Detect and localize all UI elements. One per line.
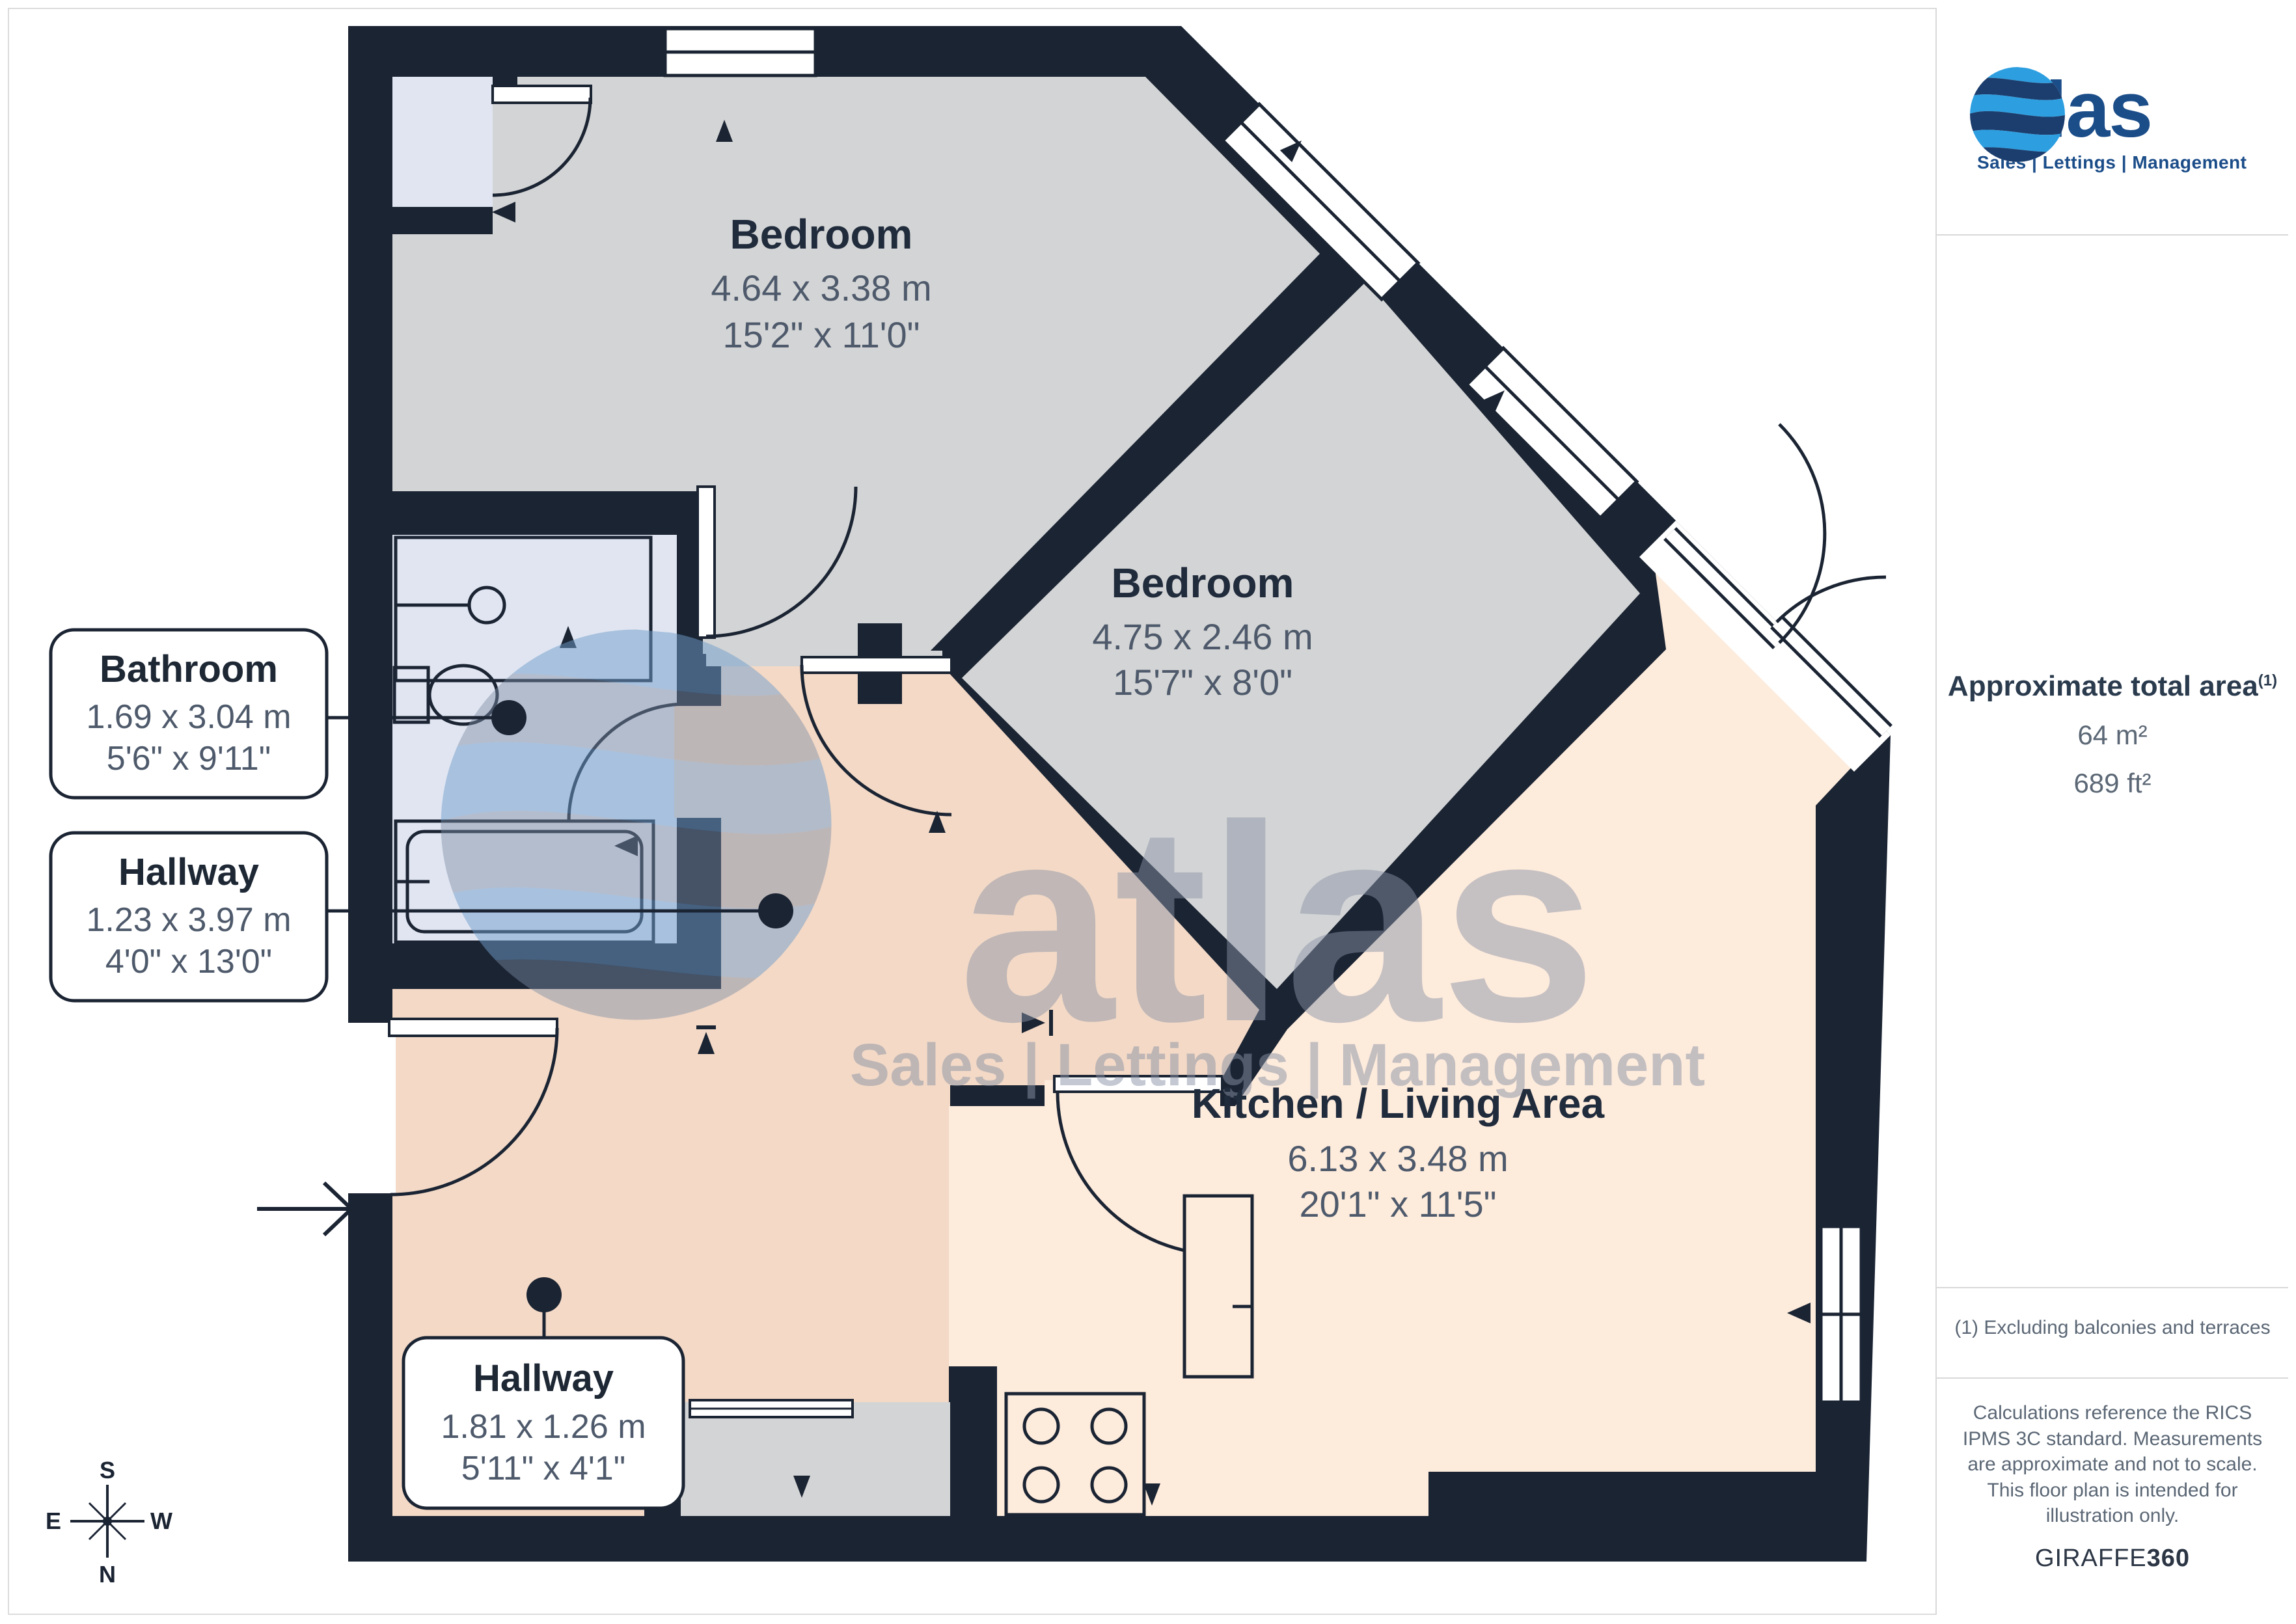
bathroom-metric: 1.69 x 3.04 m [86,698,291,736]
compass-north: N [99,1561,116,1588]
bedroom1-imperial: 15'2" x 11'0" [723,314,920,355]
total-area-title: Approximate total area(1) [1937,670,2288,703]
hallway2-label: Hallway [473,1357,614,1400]
disclaimer-text: Calculations reference the RICS IPMS 3C … [1960,1400,2265,1529]
balcony-door-arc-2 [1777,577,1886,622]
wall-stub-kitchen-west [949,1366,997,1516]
bedroom1-metric: 4.64 x 3.38 m [711,267,931,308]
hallway1-label: Hallway [118,851,259,893]
bathroom-label: Bathroom [100,648,278,690]
total-area-block: Approximate total area(1) 64 m² 689 ft² [1937,670,2288,799]
bedroom2-door-leaf [802,657,951,673]
hob-unit [1006,1394,1144,1515]
tall-kitchen-unit [1184,1196,1252,1377]
bedroom1-label: Bedroom [730,211,913,258]
hallway2-imperial: 5'11" x 4'1" [461,1450,625,1487]
bedroom2-imperial: 15'7" x 8'0" [1113,662,1292,703]
hallway1-metric: 1.23 x 3.97 m [86,901,291,939]
compass-south: S [100,1457,115,1483]
leader-dot [491,700,526,735]
compass-east: E [46,1508,61,1534]
entry-door-leaf [389,1019,557,1036]
doorway-gap-entry [344,1023,396,1193]
credit-suffix: 360 [2147,1545,2190,1572]
bedroom1-door-leaf [698,487,715,638]
sidebar-divider [1937,1377,2288,1379]
sidebar-divider [1937,234,2288,236]
leader-dot [526,1277,562,1312]
hallway1-imperial: 4'0" x 13'0" [105,943,272,981]
bedroom2-label: Bedroom [1112,560,1294,606]
atlas-globe-icon [1968,65,2067,164]
closet-bedroom1-floor [392,77,493,207]
info-sidebar: atlas Sales | Lettings | Management Appr… [1935,8,2288,1615]
total-area-imperial: 689 ft² [1937,768,2288,799]
hallway2-metric: 1.81 x 1.26 m [441,1408,646,1446]
credit-brand: GIRAFFE [2035,1545,2147,1572]
total-area-metric: 64 m² [1937,720,2288,751]
entry-arrow-icon [257,1183,351,1235]
area-footnote: (1) Excluding balconies and terraces [1937,1317,2288,1339]
balcony-door-arc-1 [1779,424,1825,643]
compass-west: W [150,1508,172,1534]
leader-dot [758,893,793,928]
bathroom-imperial: 5'6" x 9'11" [107,740,271,778]
closet-door-leaf [493,86,591,103]
total-area-title-text: Approximate total area [1948,670,2258,702]
kitchen-living-imperial: 20'1" x 11'5" [1300,1184,1497,1225]
bedroom2-metric: 4.75 x 2.46 m [1092,616,1313,657]
total-area-footnote-marker: (1) [2258,671,2277,689]
floorplan-page: atlas Sales | Lettings | Management Bedr… [0,0,2296,1624]
agency-logo: atlas Sales | Lettings | Management [1968,65,2267,182]
giraffe360-credit: GIRAFFE360 [1937,1545,2288,1573]
sidebar-divider [1937,1287,2288,1288]
kitchen-living-label: Kitchen / Living Area [1192,1080,1605,1127]
entry-closet-floor [681,1402,950,1516]
kitchen-living-metric: 6.13 x 3.48 m [1287,1138,1508,1179]
compass-rose: S N E W [46,1457,172,1588]
